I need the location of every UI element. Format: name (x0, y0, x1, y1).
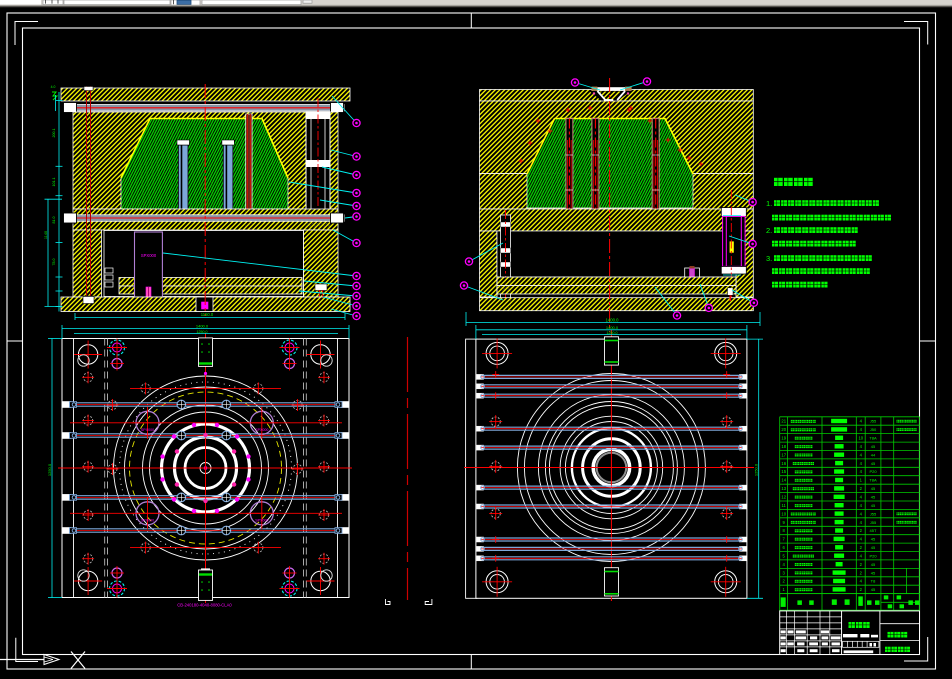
svg-text:13: 13 (781, 486, 786, 491)
svg-text:J50: J50 (870, 427, 877, 432)
svg-text:1150.0: 1150.0 (201, 312, 214, 317)
svg-text:3.: 3. (766, 254, 772, 263)
svg-text:1250.0: 1250.0 (47, 463, 52, 476)
svg-text:10: 10 (781, 511, 786, 516)
svg-text:45: 45 (871, 587, 876, 592)
svg-text:J55: J55 (870, 419, 877, 424)
svg-text:21: 21 (781, 419, 786, 424)
svg-text:45: 45 (871, 486, 876, 491)
svg-text:T8: T8 (871, 579, 876, 584)
svg-text:14: 14 (781, 478, 786, 483)
svg-text:J55: J55 (870, 520, 877, 525)
svg-text:44: 44 (871, 452, 876, 457)
svg-text:45: 45 (871, 570, 876, 575)
svg-text:SPX000: SPX000 (141, 518, 154, 522)
svg-text:11: 11 (782, 503, 787, 508)
svg-text:SPX000: SPX000 (255, 428, 268, 432)
svg-text:1250.0: 1250.0 (754, 463, 759, 476)
svg-text:45: 45 (871, 503, 876, 508)
svg-text:SPX000: SPX000 (141, 428, 154, 432)
svg-text:16: 16 (781, 461, 786, 466)
svg-text:101.1: 101.1 (52, 178, 56, 187)
svg-text:1400.0: 1400.0 (606, 325, 619, 330)
svg-text:19: 19 (781, 436, 786, 441)
svg-text:45: 45 (871, 537, 876, 542)
svg-text:45: 45 (871, 495, 876, 500)
svg-text:78.0: 78.0 (52, 259, 56, 266)
svg-text:1250.0: 1250.0 (197, 330, 208, 334)
svg-text:P20: P20 (869, 553, 877, 558)
svg-text:T8A: T8A (869, 436, 877, 441)
svg-text:P20: P20 (869, 469, 877, 474)
svg-text:1250.0: 1250.0 (607, 331, 618, 335)
svg-text:45: 45 (871, 545, 876, 550)
svg-text:4.0: 4.0 (51, 85, 56, 89)
svg-text:1400.0: 1400.0 (606, 318, 619, 323)
svg-text:SPX000: SPX000 (255, 518, 268, 522)
svg-text:81.0: 81.0 (52, 217, 56, 224)
svg-text:45T: 45T (870, 528, 877, 533)
svg-text:2.: 2. (766, 226, 772, 235)
svg-text:200.1: 200.1 (52, 129, 56, 138)
svg-text:CB-240180-4040-8080-CLA0: CB-240180-4040-8080-CLA0 (177, 602, 232, 607)
svg-text:20: 20 (781, 427, 786, 432)
svg-text:J55: J55 (870, 511, 877, 516)
svg-text:45: 45 (871, 562, 876, 567)
svg-text:12: 12 (781, 495, 786, 500)
svg-text:10: 10 (858, 436, 863, 441)
svg-text:45: 45 (871, 461, 876, 466)
svg-text:17: 17 (781, 452, 786, 457)
svg-text:45: 45 (871, 444, 876, 449)
svg-text:T8A: T8A (869, 478, 877, 483)
svg-text:SPX000: SPX000 (141, 253, 157, 258)
svg-text:1.: 1. (766, 199, 772, 208)
svg-text:1400.0: 1400.0 (196, 324, 209, 329)
svg-text:18: 18 (781, 444, 786, 449)
svg-text:1140: 1140 (44, 231, 48, 239)
svg-text:15: 15 (781, 469, 786, 474)
